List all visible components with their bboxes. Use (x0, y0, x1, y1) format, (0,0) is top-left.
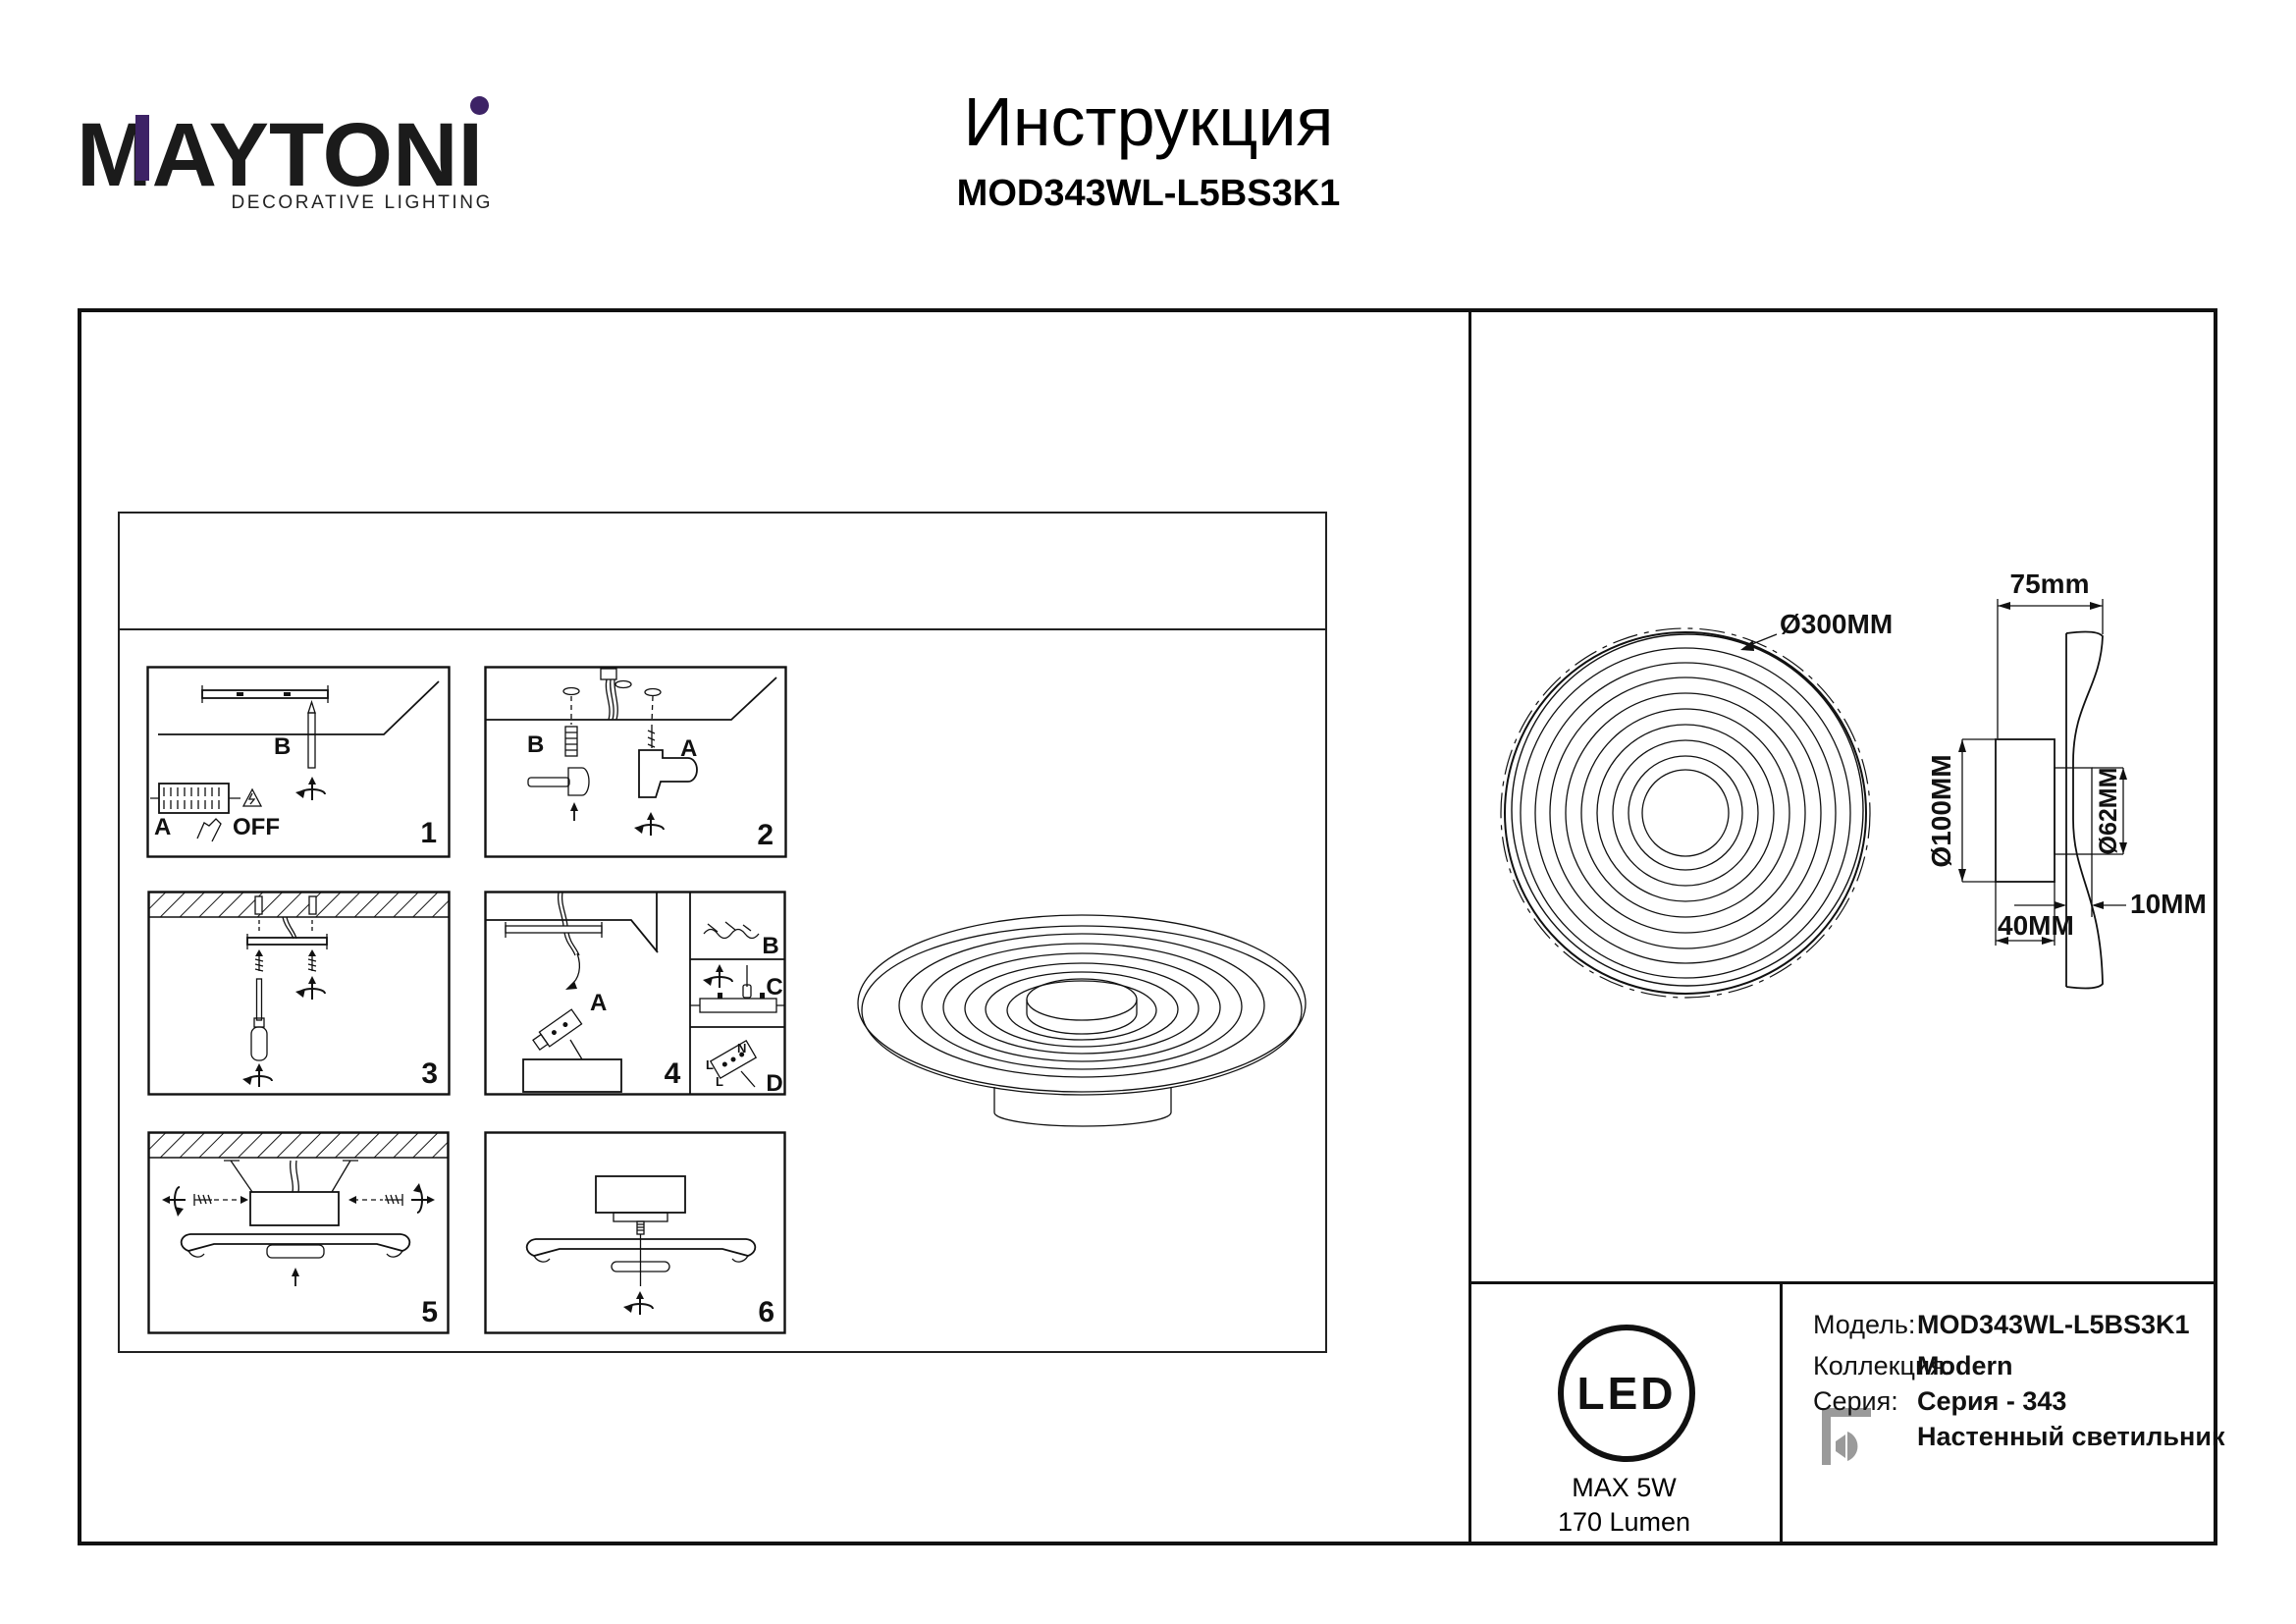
step1-label-a: A (154, 814, 171, 840)
step-panel-3: 3 (147, 891, 451, 1096)
dim-inner-diameter: Ø62MM (2095, 768, 2122, 855)
brand-m-accent-bar (135, 115, 149, 181)
step4-label-c: C (766, 974, 782, 1001)
step5-number: 5 (421, 1296, 438, 1328)
spec-value: MOD343WL-L5BS3K1 (1917, 1310, 2190, 1339)
spec-row-type: Настенный светильник (1813, 1422, 2224, 1452)
side-view-drawing: 75mm Ø100MM Ø62MM 10MM (1924, 569, 2218, 1011)
spec-value: Modern (1917, 1351, 2013, 1380)
spec-row-collection: Коллекция:Modern (1813, 1351, 2013, 1381)
page-title: Инструкция (834, 82, 1463, 161)
page-model: MOD343WL-L5BS3K1 (834, 173, 1463, 215)
brand-i-dot-icon (470, 96, 489, 115)
step-panel-6: 6 (484, 1131, 786, 1334)
step6-number: 6 (758, 1296, 774, 1328)
step1-number: 1 (420, 817, 437, 849)
led-logo-text: LED (1577, 1368, 1677, 1419)
step4-wire-l2: L (716, 1074, 723, 1089)
steps-frame-header-line (118, 628, 1327, 630)
step2-label-b: B (527, 731, 544, 758)
lamp-illustration (844, 908, 1315, 1134)
spec-value: Серия - 343 (1917, 1386, 2066, 1416)
spec-label: Модель: (1813, 1310, 1917, 1340)
step2-number: 2 (757, 819, 774, 851)
brand-logo: MAYTONI (77, 110, 483, 200)
dim-front-diameter: Ø300MM (1780, 609, 1893, 639)
wall-base-box (1996, 739, 2055, 882)
plug-in-wall (255, 896, 262, 914)
dim-gap: 10MM (2130, 889, 2207, 919)
front-view-drawing: Ø300MM (1482, 605, 1895, 1017)
step1-label-b: B (274, 733, 291, 760)
step4-wire-n: N (737, 1041, 746, 1056)
instruction-sheet: MAYTONI DECORATIVE LIGHTING Инструкция M… (0, 0, 2296, 1624)
step2-label-a: A (680, 735, 697, 762)
spec-max-power: MAX 5W (1468, 1473, 1780, 1503)
dim-depth: 40MM (1998, 910, 2074, 941)
step3-number: 3 (421, 1057, 438, 1090)
dim-width: 75mm (2010, 569, 2090, 599)
step-panel-4: A 4 B C L N L (484, 891, 786, 1096)
spec-luminous-flux: 170 Lumen (1468, 1507, 1780, 1538)
spec-row-series: Серия:Серия - 343 (1813, 1386, 2066, 1417)
step4-label-a: A (590, 990, 607, 1016)
spec-row-model: Модель:MOD343WL-L5BS3K1 (1813, 1310, 2190, 1340)
plug-in-wall (309, 896, 316, 914)
step-panel-1: B A OFF 1 (146, 666, 451, 858)
led-logo-icon: LED (1556, 1323, 1698, 1465)
spec-label: Коллекция: (1813, 1351, 1917, 1381)
ceiling-hatch (149, 893, 449, 917)
step4-label-d: D (766, 1070, 782, 1096)
step4-label-b: B (762, 933, 778, 959)
spec-box-divider (1780, 1281, 1783, 1545)
step4-number: 4 (665, 1057, 681, 1090)
brand-tagline: DECORATIVE LIGHTING (77, 192, 493, 214)
spec-label: Серия: (1813, 1386, 1917, 1417)
step4-wire-l1: L (706, 1057, 714, 1072)
dim-back-diameter: Ø100MM (1926, 754, 1956, 867)
spec-value: Настенный светильник (1917, 1422, 2224, 1451)
step1-label-off: OFF (233, 814, 280, 840)
step-panel-5: 5 (147, 1131, 450, 1334)
step-panel-2: B A 2 (484, 666, 787, 858)
ceiling-hatch (149, 1133, 448, 1158)
